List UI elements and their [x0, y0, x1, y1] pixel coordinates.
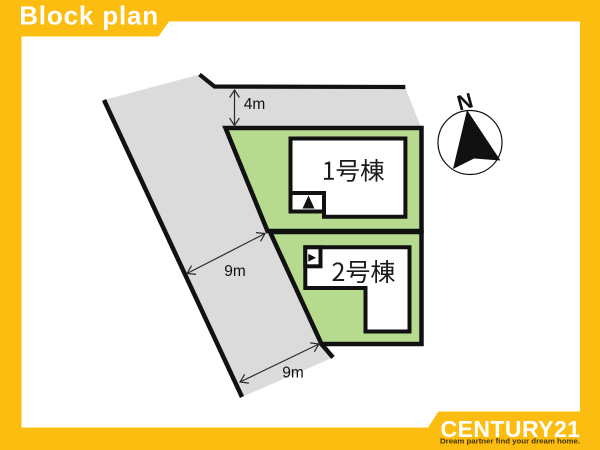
- svg-text:9m: 9m: [282, 365, 304, 382]
- svg-text:9m: 9m: [224, 263, 246, 280]
- svg-text:4m: 4m: [244, 96, 266, 113]
- svg-text:Block plan: Block plan: [19, 1, 158, 31]
- svg-text:Dream partner find your dream: Dream partner find your dream home.: [440, 436, 580, 445]
